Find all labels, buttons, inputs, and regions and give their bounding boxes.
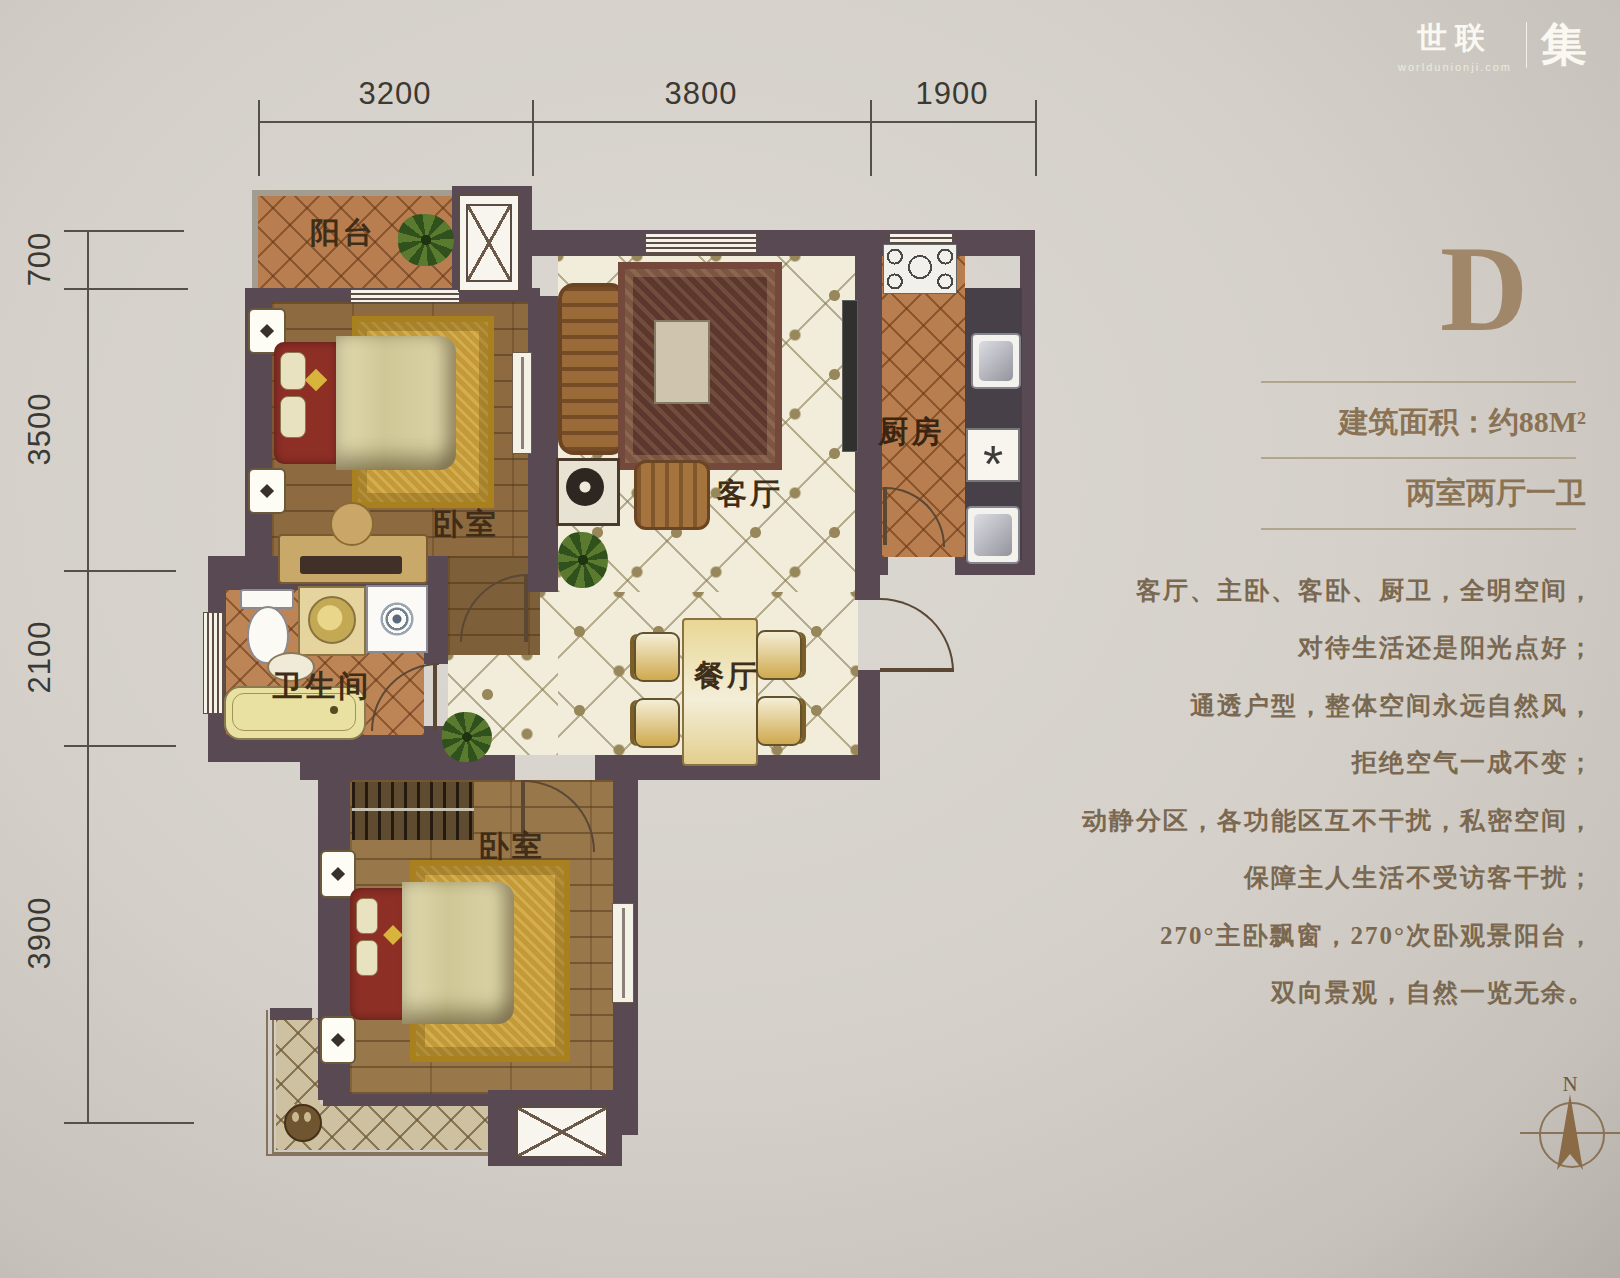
dim-tick (64, 1122, 194, 1124)
dim-left-4: 3900 (22, 897, 58, 970)
flowerpot-icon (284, 1104, 322, 1142)
window-bedroom1-east (512, 352, 532, 454)
plant-icon (398, 214, 454, 266)
wall-living-kitchen (855, 256, 882, 560)
bedroom1-stool (330, 502, 374, 546)
stove-icon (883, 244, 957, 294)
description-line-4: 拒绝空气一成不变； (1352, 746, 1595, 779)
bedroom-main-label: 卧室 (433, 504, 499, 545)
description-line-6: 保障主人生活不受访客干扰； (1244, 861, 1595, 894)
dim-left-2: 3500 (22, 393, 58, 466)
bedroom-second-label: 卧室 (479, 826, 545, 867)
flowerpot-dot (292, 1112, 299, 1122)
coffee-table (654, 320, 710, 404)
panel-rule (1261, 381, 1576, 383)
bed2-pillow (356, 940, 378, 976)
logo-divider (1526, 22, 1527, 68)
entry-door-leaf (880, 668, 954, 672)
compass-needle-icon (1557, 1094, 1583, 1178)
wall-entry-jamb (855, 575, 880, 600)
bed1-blanket (336, 336, 456, 470)
plant-icon (442, 712, 492, 762)
bed2-blanket (402, 882, 514, 1024)
brand-mark: 集 (1541, 14, 1587, 76)
dim-tick (532, 100, 534, 176)
dining-label: 餐厅 (694, 656, 760, 697)
kitchen-sink-icon (971, 333, 1021, 389)
dining-chair (756, 696, 802, 746)
washing-machine-icon (366, 585, 428, 653)
dim-tick (870, 100, 872, 176)
tv-icon (842, 300, 858, 452)
dining-chair (634, 698, 680, 748)
wall-hall-pillar (528, 556, 558, 592)
refrigerator-icon: * (966, 428, 1020, 482)
dim-top-1: 3200 (359, 76, 432, 112)
dim-tick (64, 230, 184, 232)
basin-icon (308, 596, 356, 644)
layout-text: 两室两厅一卫 (1406, 473, 1586, 514)
panel-rule (1261, 457, 1576, 459)
flowerpot-dot (304, 1112, 311, 1122)
window-bedroom2-east (612, 903, 634, 1003)
wall-bedroom1-right (528, 296, 558, 562)
bathtub-drain (330, 706, 338, 714)
dim-left-1: 700 (22, 232, 58, 287)
description-line-3: 通透户型，整体空间永远自然风， (1190, 689, 1595, 722)
dim-tick (258, 100, 260, 176)
wall-entry-south (858, 670, 880, 760)
bedroom1-dresser-top (300, 556, 402, 574)
description-line-7: 270°主卧飘窗，270°次卧观景阳台， (1160, 919, 1595, 952)
panel-rule (1261, 528, 1576, 530)
entry-door-arc (880, 598, 954, 672)
kitchen-sink-icon (966, 506, 1020, 564)
description-line-5: 动静分区，各功能区互不干扰，私密空间， (1082, 804, 1595, 837)
dining-chair (756, 630, 802, 680)
kitchen-label: 厨房 (878, 412, 944, 453)
wardrobe-rod (352, 808, 474, 811)
bed1-pillow (280, 352, 306, 390)
armchair (634, 460, 710, 530)
dim-tick (64, 745, 176, 747)
description-line-1: 客厅、主卧、客卧、厨卫，全明空间， (1136, 574, 1595, 607)
description-line-2: 对待生活还是阳光点好； (1298, 631, 1595, 664)
dim-tick (1035, 100, 1037, 176)
brand-name: 世联 (1398, 18, 1512, 59)
dim-top-3: 1900 (916, 76, 989, 112)
living-label: 客厅 (717, 474, 783, 515)
dim-tick (64, 570, 176, 572)
kitchen-door-leaf (883, 487, 887, 545)
bay-cushion-icon (248, 468, 286, 514)
floor-lamp-shade (566, 468, 604, 506)
dim-line (87, 230, 89, 1122)
balcony-label: 阳台 (310, 213, 376, 254)
wardrobe-icon (352, 782, 474, 840)
brand-domain: worldunionji.com (1398, 61, 1512, 73)
bathroom-door-leaf (433, 663, 437, 731)
dim-line (258, 121, 1035, 123)
window-balcony-sill (350, 289, 460, 303)
wall-balcony2-stub (270, 1008, 312, 1020)
dim-left-3: 2100 (22, 621, 58, 694)
window-living-north (645, 233, 757, 255)
wall-kitchen-bottom-left (855, 557, 888, 575)
dim-tick (64, 288, 188, 290)
dining-chair (634, 632, 680, 682)
bed1-pillow (280, 396, 306, 438)
bathroom-label: 卫生间 (273, 666, 372, 707)
bay-cushion-icon (320, 1016, 356, 1064)
bedroom1-door-leaf (524, 574, 528, 642)
duct-shaft-icon (516, 1106, 608, 1158)
bay-cushion-icon (320, 850, 356, 898)
compass: N (1520, 1072, 1620, 1184)
area-text: 建筑面积：约88M² (1339, 402, 1586, 443)
wall-kitchen-right (1020, 256, 1035, 575)
wall-north (532, 230, 1035, 256)
dim-top-2: 3800 (665, 76, 738, 112)
plant-icon (558, 532, 608, 588)
wall-bedroom2-sill (323, 1094, 491, 1106)
window-bathroom-west (203, 612, 225, 714)
bed2-pillow (356, 898, 378, 934)
floorplan-page: 3200 3800 1900 700 3500 2100 3900 (0, 0, 1620, 1278)
brand-logo: 世联 worldunionji.com 集 (1398, 14, 1587, 76)
sofa (558, 283, 622, 455)
unit-letter: D (1440, 228, 1528, 350)
description-line-8: 双向景观，自然一览无余。 (1271, 976, 1595, 1009)
elevator-shaft-icon (466, 204, 512, 282)
